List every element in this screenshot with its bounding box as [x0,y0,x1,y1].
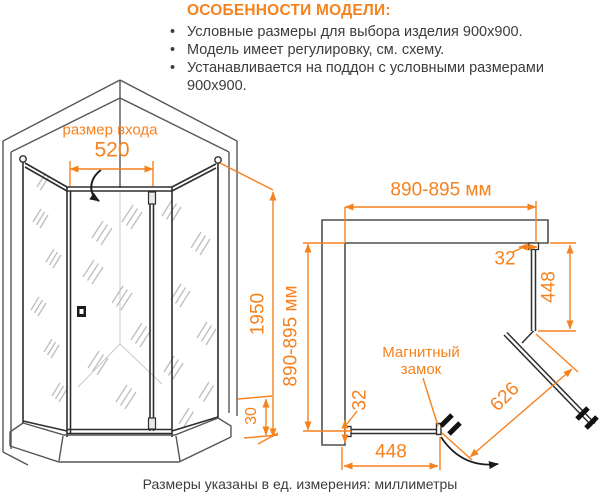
depth-left-dim: 890-895 мм [282,285,301,386]
magnet-lock-label: Магнитный замок [365,344,477,379]
open-door-handle [577,408,597,428]
units-note: Размеры указаны в ед. измерения: миллиме… [143,476,458,492]
entry-width-dim: 520 [94,140,129,161]
shower-enclosure-diagram: ОСОБЕННОСТИ МОДЕЛИ: Условные размеры для… [0,0,600,499]
magnet-strips [441,415,460,434]
tray-height-dim: 30 [244,407,260,425]
height-dim: 1950 [249,293,268,335]
entry-size-label: размер входа [63,123,158,138]
panel-right-dim: 448 [540,271,559,303]
features-block: ОСОБЕННОСТИ МОДЕЛИ: Условные размеры для… [168,2,568,95]
door-hinge-bottom [149,418,156,429]
feature-item: Устанавливается на поддон с условными ра… [168,59,572,95]
gap-bottom-dim: 32 [351,389,370,410]
top-view-drawing [303,201,597,470]
feature-item: Модель имеет регулировку, см. схему. [168,41,572,59]
door-swing-arrow [91,170,101,201]
door-hinge-top [149,192,156,204]
door-handle [77,306,86,317]
shower-tray [10,418,231,462]
panel-bottom-dim: 448 [375,443,407,462]
feature-item: Условные размеры для выбора изделия 900x… [168,23,572,41]
gap-top-dim: 32 [494,250,515,269]
width-top-dim: 890-895 мм [390,181,491,200]
features-title: ОСОБЕННОСТИ МОДЕЛИ: [187,2,568,20]
